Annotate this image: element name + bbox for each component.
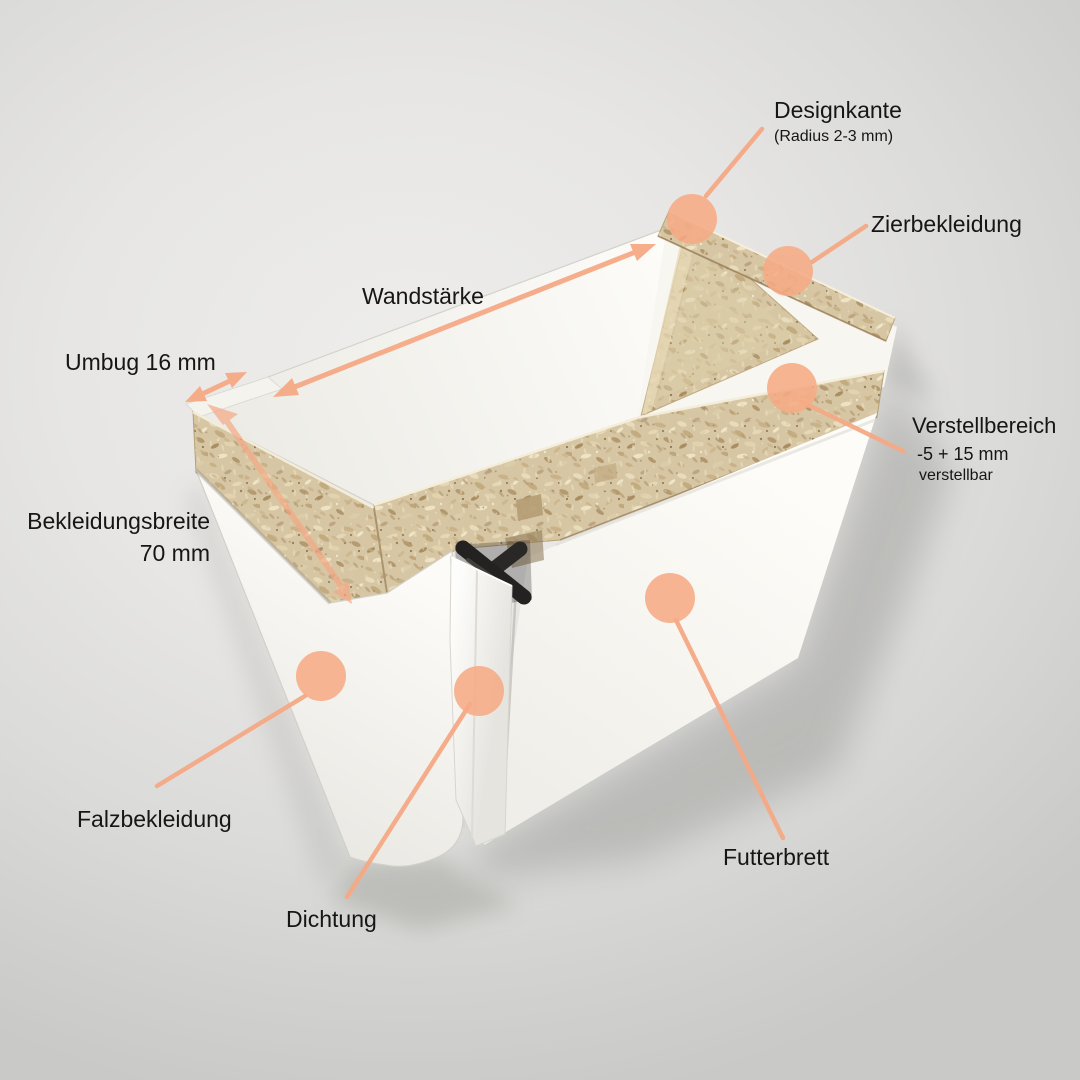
dichtung-label: Dichtung (286, 906, 377, 932)
verstellbereich-label: Verstellbereich (912, 413, 1056, 438)
umbug-label: Umbug 16 mm (65, 349, 216, 375)
zierbekleidung-line (812, 226, 866, 262)
verstellbereich-marker (767, 363, 817, 413)
verstellbereich-note: verstellbar (919, 467, 993, 485)
futterbrett-marker (645, 573, 695, 623)
falzbekleidung-label: Falzbekleidung (77, 806, 232, 832)
bekleidungsbreite-label-block: Bekleidungsbreite 70 mm (27, 508, 210, 567)
designkante-line (706, 129, 762, 196)
zierbekleidung-marker (763, 246, 813, 296)
dichtung-marker (454, 666, 504, 716)
falzbekleidung-marker (296, 651, 346, 701)
verstellbereich-range: -5 + 15 mm (917, 444, 1009, 465)
wandstaerke-label: Wandstärke (362, 283, 484, 309)
designkante-marker (667, 194, 717, 244)
bekleidungsbreite-label: Bekleidungsbreite (27, 508, 210, 534)
designkante-sublabel: (Radius 2-3 mm) (774, 128, 893, 146)
designkante-label: Designkante (774, 97, 902, 123)
zierbekleidung-label: Zierbekleidung (871, 211, 1022, 237)
futterbrett-label: Futterbrett (723, 844, 829, 870)
bekleidungsbreite-value: 70 mm (27, 540, 210, 566)
door-frame-annotated-diagram: Designkante (Radius 2-3 mm) Zierbekleidu… (0, 0, 1080, 1080)
